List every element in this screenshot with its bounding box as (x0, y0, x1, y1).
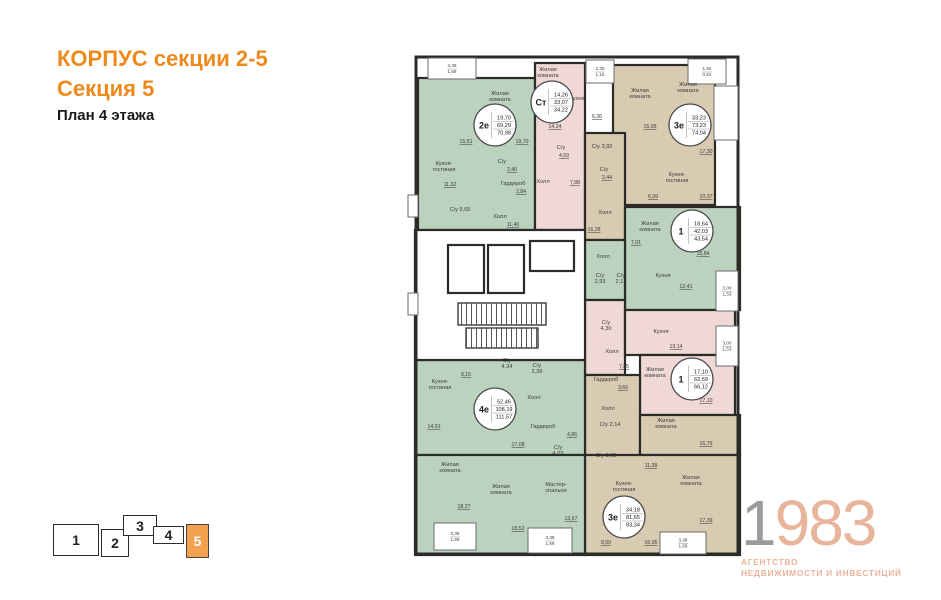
apartment-area: 34,22 (554, 108, 568, 114)
room-label: Кухня-гостиная (613, 481, 636, 493)
section-5[interactable]: 5 (186, 524, 209, 558)
room-label: Гардероб (501, 181, 526, 187)
room-dimension: 8,15 (461, 372, 471, 378)
room-dimension: 12,41 (680, 284, 693, 290)
room-dimension: 3,69 (618, 385, 628, 391)
room-dimension: 6,36 (592, 114, 602, 120)
room-dimension: 19,70 (516, 139, 529, 145)
room-dimension: 18,27 (458, 504, 471, 510)
room-dimension: 14,91 (428, 424, 441, 430)
balcony-area: 3,001,53 (723, 286, 732, 297)
room-label: Жилаякомната (490, 484, 512, 496)
apartment-badge-Ст[interactable]: Ст14,2633,0734,22 (531, 81, 573, 123)
room-dimension: 7,88 (570, 180, 580, 186)
section-4[interactable]: 4 (153, 526, 184, 544)
room-label: С/у2,36 (532, 363, 543, 375)
apartment-area: 33,23 (692, 116, 706, 122)
room-dimension: 6,99 (648, 194, 658, 200)
room-dimension: 16,79 (700, 441, 713, 447)
room-label: Жилаякомната (644, 367, 666, 379)
room-label: Холл (605, 349, 618, 355)
room-label: Жилаякомната (639, 221, 661, 233)
room-dimension: 16,95 (645, 540, 658, 546)
balcony-area: 1,620,81 (703, 66, 712, 77)
logo-digits-peach: 983 (775, 487, 876, 559)
room-dimension: 15,95 (644, 124, 657, 130)
balcony (408, 195, 418, 217)
balcony-area: 3,381,69 (451, 531, 460, 542)
room-label: С/у2,12 (616, 273, 627, 285)
room-dimension: 11,40 (507, 222, 520, 228)
staircase-steps (466, 328, 538, 348)
room-label: Холл (536, 179, 549, 185)
room-dimension: 15,51 (460, 139, 473, 145)
apartment-area: 52,46 (497, 400, 511, 406)
room-dimension: 17,08 (512, 442, 525, 448)
apartment-badge-1[interactable]: 117,1062,5966,12 (671, 358, 713, 400)
page-subtitle: План 4 этажа (57, 107, 268, 124)
apartment-area: 70,98 (497, 131, 511, 137)
room-dimension: 13,67 (565, 516, 578, 522)
room-dimension: 14,24 (549, 124, 562, 130)
page-title-line1: КОРПУС секции 2-5 (57, 44, 268, 74)
balcony (408, 293, 418, 315)
room-label: С/у4,03 (553, 445, 564, 457)
page-title-line2: Секция 5 (57, 74, 268, 104)
balcony-area: 3,381,69 (679, 538, 688, 549)
room-label: Жилаякомната (677, 82, 699, 94)
apartment-type: 1 (678, 227, 683, 237)
room-dimension: 13,14 (670, 344, 683, 350)
room-label: С/у (498, 159, 507, 165)
room-dimension: 2,84 (516, 189, 526, 195)
apartment-area: 34,18 (626, 508, 640, 514)
apartment-region (418, 78, 535, 230)
apartment-badge-2е[interactable]: 2е19,7069,2970,98 (474, 104, 516, 146)
floorplan-container: 3,381,692,301,151,620,813,001,533,001,53… (400, 45, 745, 565)
room-label: С/у4,34 (502, 358, 513, 370)
room-label: Холл (598, 210, 611, 216)
apartment-area: 14,26 (554, 93, 568, 99)
logo-tagline: АГЕНТСТВО НЕДВИЖИМОСТИ И ИНВЕСТИЦИЙ (741, 557, 902, 579)
apartment-area: 74,04 (692, 131, 706, 137)
room-dimension: 7,01 (631, 240, 641, 246)
room-label: Жилаякомната (439, 462, 461, 474)
apartment-area: 81,65 (626, 515, 640, 521)
apartment-area: 108,19 (495, 407, 512, 413)
apartment-region (585, 240, 625, 300)
apartment-region (640, 415, 740, 455)
room-dimension: 18,52 (512, 526, 525, 532)
room-label: Гардероб (531, 424, 556, 430)
room-label: Кухня (654, 329, 669, 335)
balcony-area: 3,381,69 (448, 63, 457, 74)
room-label: Жилаякомната (537, 67, 559, 79)
apartment-area: 111,57 (496, 415, 512, 421)
apartment-area: 69,29 (497, 123, 511, 129)
apartment-badge-3е[interactable]: 3е34,1881,6583,34 (603, 496, 645, 538)
apartment-type: Ст (536, 98, 547, 108)
apartment-area: 66,12 (694, 385, 708, 391)
room-dimension: 16,84 (697, 251, 710, 257)
apartment-badge-1[interactable]: 118,6442,0343,54 (671, 210, 713, 252)
apartment-area: 73,23 (692, 123, 706, 129)
apartment-type: 4е (479, 405, 489, 415)
floorplan: 3,381,692,301,151,620,813,001,533,001,53… (400, 45, 745, 560)
elevator-shaft (488, 245, 524, 293)
room-dimension: 4,86 (567, 432, 577, 438)
room-label: С/у 3,65 (596, 453, 617, 459)
page-header: КОРПУС секции 2-5 Секция 5 План 4 этажа (57, 44, 268, 124)
room-dimension: 11,32 (444, 182, 457, 188)
room-label: Жилаякомната (489, 91, 511, 103)
logo-tagline-line2: НЕДВИЖИМОСТИ И ИНВЕСТИЦИЙ (741, 568, 902, 579)
section-3[interactable]: 3 (123, 515, 157, 536)
room-label: Холл (493, 214, 506, 220)
logo-digit-gray: 1 (741, 487, 775, 559)
room-label: С/у 3,92 (592, 144, 613, 150)
apartment-area: 17,10 (694, 370, 708, 376)
room-dimension: 17,10 (700, 398, 713, 404)
balcony-area: 2,301,15 (596, 66, 605, 77)
room-label: Кухня-гостиная (433, 161, 456, 173)
balcony-area: 3,381,69 (546, 535, 555, 546)
room-label: Холл (601, 406, 614, 412)
apartment-type: 3е (608, 513, 618, 523)
room-dimension: 16,28 (588, 227, 601, 233)
apartment-area: 83,34 (626, 523, 640, 529)
room-dimension: 4,59 (559, 153, 569, 159)
room-label: Мастер-спальня (545, 482, 566, 494)
room-label: Жилаякомната (680, 475, 702, 487)
apartment-area: 18,64 (694, 222, 708, 228)
balcony (714, 86, 738, 140)
room-label: Гардероб (594, 377, 619, 383)
elevator-shaft (448, 245, 484, 293)
room-dimension: 10,37 (700, 194, 713, 200)
room-label: Жилаякомната (629, 88, 651, 100)
apartment-region (585, 375, 640, 460)
room-label: С/у 2,14 (600, 422, 621, 428)
apartment-area: 43,54 (694, 237, 708, 243)
room-label: Кухня-гостиная (429, 379, 452, 391)
section-1[interactable]: 1 (53, 524, 99, 556)
room-dimension: 8,50 (601, 540, 611, 546)
apartment-type: 2е (479, 121, 489, 131)
agency-logo: 1983 АГЕНТСТВО НЕДВИЖИМОСТИ И ИНВЕСТИЦИЙ (741, 492, 902, 579)
room-label: Кухня (656, 273, 671, 279)
apartment-badge-3е[interactable]: 3е33,2373,2374,04 (669, 104, 711, 146)
apartment-badge-4е[interactable]: 4е52,46108,19111,57 (474, 388, 516, 430)
room-label: С/у (600, 167, 609, 173)
apartment-type: 3е (674, 121, 684, 131)
logo-1983: 1983 (741, 492, 902, 554)
room-label: Холл (527, 395, 540, 401)
room-label: Кухня-гостиная (666, 172, 689, 184)
staircase-steps (458, 303, 546, 325)
room-label: Жилаякомната (655, 418, 677, 430)
room-label: С/у 5,65 (450, 207, 471, 213)
room-dimension: 7,85 (619, 364, 629, 370)
apartment-type: 1 (678, 375, 683, 385)
room-label: С/у4,30 (601, 320, 612, 332)
room-label: С/у2,93 (595, 273, 606, 285)
apartment-area: 62,59 (694, 377, 708, 383)
balcony-area: 3,001,53 (723, 341, 732, 352)
apartment-area: 19,70 (497, 116, 511, 122)
room-dimension: 2,40 (507, 167, 517, 173)
room-dimension: 17,30 (700, 149, 713, 155)
room-label: С/у (557, 145, 566, 151)
elevator-shaft (530, 241, 574, 271)
apartment-area: 42,03 (694, 229, 708, 235)
room-dimension: 17,39 (700, 518, 713, 524)
room-label: Холл (596, 254, 609, 260)
room-dimension: 2,44 (602, 175, 612, 181)
apartment-area: 33,07 (554, 100, 568, 106)
room-dimension: 11,38 (645, 463, 658, 469)
